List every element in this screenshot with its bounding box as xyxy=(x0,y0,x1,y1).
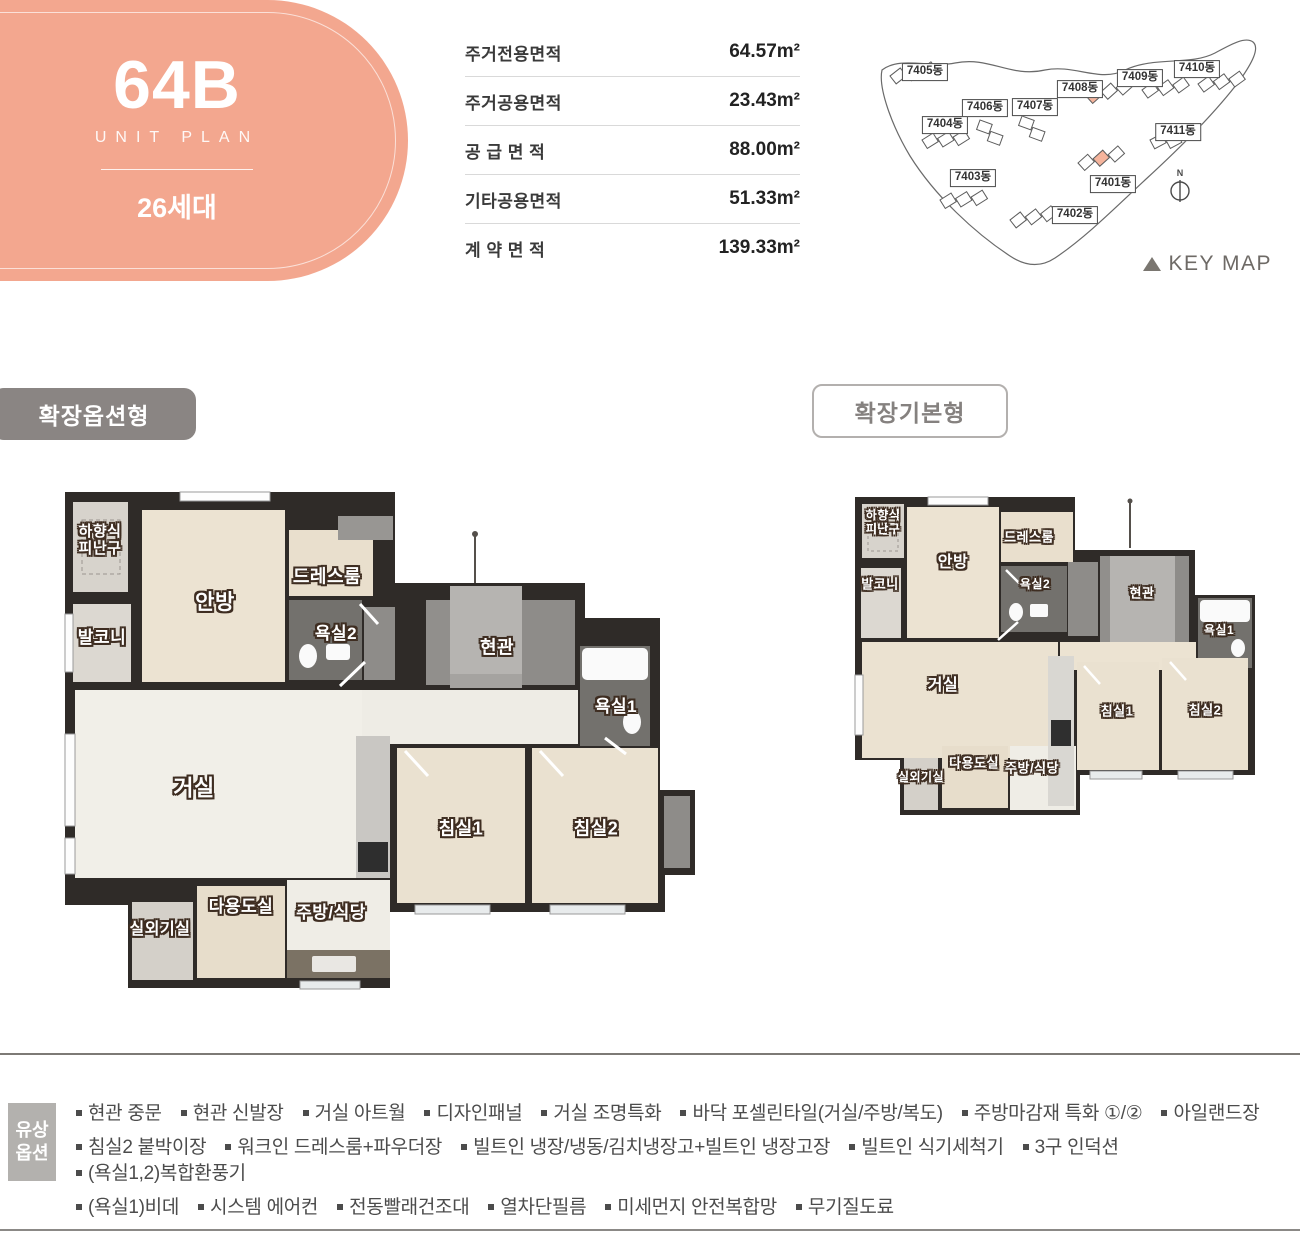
badge-divider xyxy=(101,169,253,170)
bullet-icon xyxy=(461,1144,467,1150)
section-label-expansion-basic: 확장기본형 xyxy=(812,384,1008,438)
keymap-building-label: 7406동 xyxy=(962,99,1008,117)
unit-name: 64B xyxy=(113,51,241,119)
keymap-building-label: 7408동 xyxy=(1057,80,1103,98)
keymap-building-label: 7403동 xyxy=(950,169,996,187)
paid-option-item: 미세먼지 안전복합망 xyxy=(605,1195,777,1222)
unit-subtitle: UNIT PLAN xyxy=(95,129,259,147)
bullet-icon xyxy=(541,1110,547,1116)
keymap-building-label: 7404동 xyxy=(922,116,968,134)
bullet-icon xyxy=(225,1144,231,1150)
paid-option-item: 주방마감재 특화 ①/② xyxy=(962,1101,1143,1128)
paid-option-item: 거실 아트월 xyxy=(303,1101,406,1128)
area-row: 기타공용면적 51.33m² xyxy=(465,175,800,224)
unit-households: 26세대 xyxy=(137,186,217,225)
room-label-outdoor: 실외기실 xyxy=(130,921,191,939)
paid-option-item: 침실2 붙박이장 xyxy=(76,1135,206,1162)
bullet-icon xyxy=(962,1110,968,1116)
keymap-building-label: 7410동 xyxy=(1174,60,1220,78)
area-label: 공 급 면 적 xyxy=(465,138,545,163)
area-label: 기타공용면적 xyxy=(465,187,562,212)
room-label-balcony: 발코니 xyxy=(78,628,126,648)
divider-top xyxy=(0,1053,1300,1055)
bullet-icon xyxy=(76,1110,82,1116)
room-label-bath1: 욕실1 xyxy=(595,697,637,717)
building-7401 xyxy=(1078,136,1125,181)
bullet-icon xyxy=(796,1204,802,1210)
room-label-bath2: 욕실2 xyxy=(315,624,357,644)
bullet-icon xyxy=(680,1110,686,1116)
room-label-escape: 하향식 피난구 xyxy=(79,523,122,558)
paid-options-list: 현관 중문현관 신발장거실 아트월디자인패널거실 조명특화바닥 포셀린타일(거실… xyxy=(76,1101,1291,1228)
keymap-building-label: 7407동 xyxy=(1012,98,1058,116)
room-label-entrance: 현관 xyxy=(1130,587,1155,602)
keymap-building-label: 7411동 xyxy=(1155,123,1201,141)
floor-plan-expansion-option: 하향식 피난구발코니안방드레스룸욕실2현관욕실1거실침실1침실2다용도실주방/식… xyxy=(60,486,710,1011)
bullet-icon xyxy=(76,1204,82,1210)
bullet-icon xyxy=(1161,1110,1167,1116)
bullet-icon xyxy=(76,1170,82,1176)
area-value: 51.33m² xyxy=(729,188,800,210)
room-label-dress: 드레스룸 xyxy=(293,567,361,588)
area-label: 주거공용면적 xyxy=(465,89,562,114)
divider-bottom xyxy=(0,1229,1300,1231)
bullet-icon xyxy=(1023,1144,1029,1150)
keymap-building-label: 7402동 xyxy=(1052,206,1098,224)
room-label-utility: 다용도실 xyxy=(949,757,999,772)
bullet-icon xyxy=(181,1110,187,1116)
bullet-icon xyxy=(849,1144,855,1150)
room-label-dress: 드레스룸 xyxy=(1004,531,1054,546)
paid-option-item: 거실 조명특화 xyxy=(541,1101,661,1128)
keymap-building-label: 7405동 xyxy=(902,63,948,81)
building-7406 xyxy=(974,120,1005,145)
room-label-bed2: 침실2 xyxy=(1189,704,1222,719)
paid-option-item: 현관 중문 xyxy=(76,1101,162,1128)
room-label-kitchen: 주방/식당 xyxy=(296,903,366,923)
paid-options-line: 침실2 붙박이장워크인 드레스룸+파우더장빌트인 냉장/냉동/김치냉장고+빌트인… xyxy=(76,1135,1291,1188)
unit-plan-page: 64B UNIT PLAN 26세대 주거전용면적 64.57m² 주거공용면적… xyxy=(0,0,1300,1236)
room-label-entrance: 현관 xyxy=(480,638,514,659)
paid-options-line: (욕실1)비데시스템 에어컨전동빨래건조대열차단필름미세먼지 안전복합망무기질도… xyxy=(76,1195,1291,1222)
room-master-bedroom xyxy=(907,507,999,638)
paid-option-item: 디자인패널 xyxy=(424,1101,522,1128)
bullet-icon xyxy=(424,1110,430,1116)
room-label-balcony: 발코니 xyxy=(861,578,898,593)
paid-option-item: 빌트인 식기세척기 xyxy=(849,1135,1003,1162)
paid-options-line: 현관 중문현관 신발장거실 아트월디자인패널거실 조명특화바닥 포셀린타일(거실… xyxy=(76,1101,1291,1128)
area-label: 주거전용면적 xyxy=(465,40,562,65)
area-value: 139.33m² xyxy=(719,237,800,259)
svg-text:N: N xyxy=(1177,168,1184,178)
paid-option-item: 전동빨래건조대 xyxy=(337,1195,469,1222)
bullet-icon xyxy=(488,1204,494,1210)
room-label-outdoor: 실외기실 xyxy=(898,771,944,785)
room-label-master: 안방 xyxy=(938,554,968,572)
paid-option-item: 무기질도료 xyxy=(796,1195,894,1222)
bullet-icon xyxy=(198,1204,204,1210)
paid-option-item: 빌트인 냉장/냉동/김치냉장고+빌트인 냉장고장 xyxy=(461,1135,830,1162)
room-outdoor-unit xyxy=(132,902,193,980)
room-label-living: 거실 xyxy=(173,775,214,800)
keymap-building-label: 7401동 xyxy=(1090,175,1136,193)
paid-option-item: 워크인 드레스룸+파우더장 xyxy=(225,1135,442,1162)
room-label-bed1: 침실1 xyxy=(1101,705,1134,720)
paid-option-item: 열차단필름 xyxy=(488,1195,586,1222)
paid-option-item: 아일랜드장 xyxy=(1161,1101,1259,1128)
building-7402 xyxy=(1010,195,1057,239)
section-label-expansion-option: 확장옵션형 xyxy=(0,388,196,440)
area-row: 주거공용면적 23.43m² xyxy=(465,77,800,126)
bullet-icon xyxy=(76,1144,82,1150)
area-row: 계 약 면 적 139.33m² xyxy=(465,224,800,272)
keymap-title-text: KEY MAP xyxy=(1169,252,1272,276)
room-label-kitchen: 주방/식당 xyxy=(1005,762,1059,777)
north-compass-icon: N xyxy=(1171,168,1189,202)
area-row: 공 급 면 적 88.00m² xyxy=(465,126,800,175)
room-label-master: 안방 xyxy=(195,591,235,615)
paid-option-item: 바닥 포셀린타일(거실/주방/복도) xyxy=(680,1101,942,1128)
bullet-icon xyxy=(303,1110,309,1116)
keymap-triangle-icon xyxy=(1143,257,1161,271)
keymap-building-label: 7409동 xyxy=(1117,69,1163,87)
room-living xyxy=(75,690,362,878)
area-value: 64.57m² xyxy=(729,41,800,63)
area-value: 23.43m² xyxy=(729,90,800,112)
room-label-escape: 하향식 피난구 xyxy=(866,509,901,537)
bullet-icon xyxy=(605,1204,611,1210)
floor-plan-expansion-basic: 하향식 피난구발코니안방드레스룸욕실2현관욕실1거실침실1침실2다용도실주방/식… xyxy=(848,490,1263,820)
keymap-title: KEY MAP xyxy=(1143,252,1272,276)
area-label: 계 약 면 적 xyxy=(465,236,545,261)
paid-option-item: 현관 신발장 xyxy=(181,1101,284,1128)
paid-option-item: (욕실1,2)복합환풍기 xyxy=(76,1161,246,1188)
room-label-bed1: 침실1 xyxy=(439,819,484,840)
area-row: 주거전용면적 64.57m² xyxy=(465,28,800,77)
paid-option-item: 시스템 에어컨 xyxy=(198,1195,318,1222)
room-label-bath1: 욕실1 xyxy=(1204,624,1234,638)
room-label-bath2: 욕실2 xyxy=(1020,578,1050,592)
unit-badge: 64B UNIT PLAN 26세대 xyxy=(0,0,408,281)
bullet-icon xyxy=(337,1204,343,1210)
room-living xyxy=(862,642,1058,758)
area-table: 주거전용면적 64.57m² 주거공용면적 23.43m² 공 급 면 적 88… xyxy=(465,28,800,272)
room-label-living: 거실 xyxy=(928,677,958,695)
room-label-utility: 다용도실 xyxy=(209,897,274,917)
paid-option-item: (욕실1)비데 xyxy=(76,1195,179,1222)
building-7407 xyxy=(1016,116,1047,141)
keymap: N 7405동7406동7407동7404동7403동7402동7401동740… xyxy=(860,28,1280,278)
paid-option-item: 3구 인덕션 xyxy=(1023,1135,1119,1162)
room-label-bed2: 침실2 xyxy=(574,819,619,840)
area-value: 88.00m² xyxy=(729,139,800,161)
paid-options-badge: 유상 옵션 xyxy=(8,1103,56,1181)
